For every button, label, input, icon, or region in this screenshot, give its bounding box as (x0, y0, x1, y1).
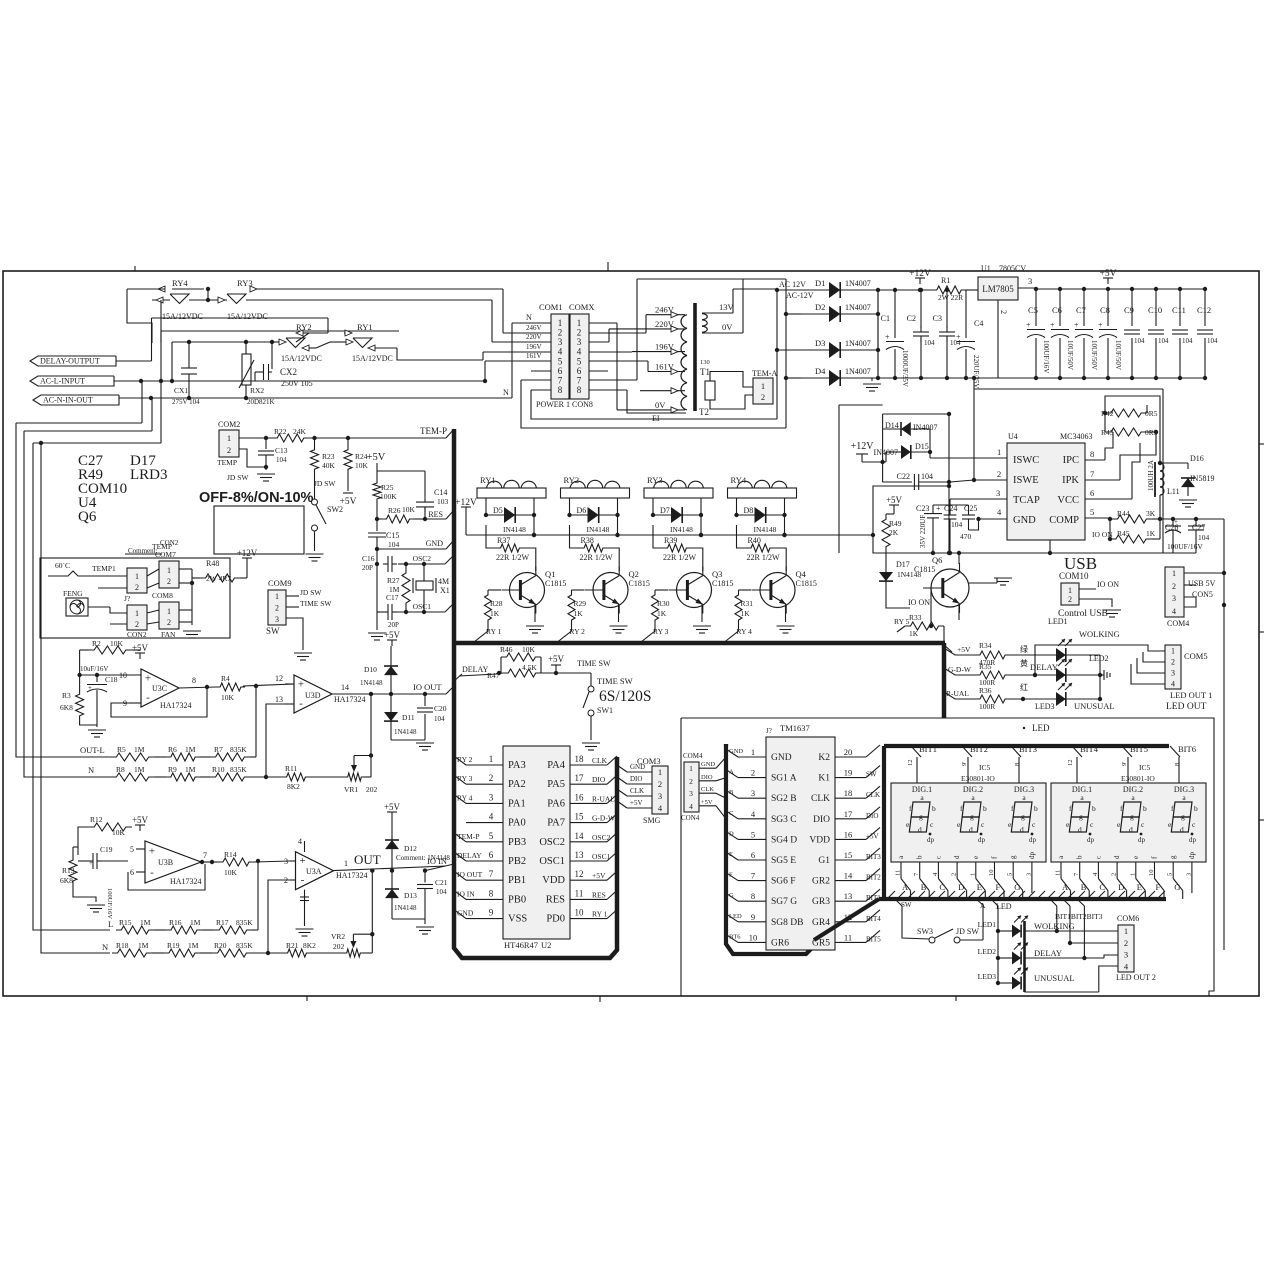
svg-text:FAN: FAN (161, 630, 176, 639)
svg-text:dp: dp (927, 836, 935, 844)
svg-text:3: 3 (1171, 669, 1175, 678)
svg-text:C22: C22 (897, 472, 910, 481)
svg-text:RY2: RY2 (296, 322, 312, 332)
svg-text:11: 11 (575, 888, 584, 898)
svg-text:b: b (1092, 804, 1096, 813)
svg-text:JD SW: JD SW (314, 479, 336, 488)
svg-text:Q6: Q6 (78, 509, 97, 525)
svg-text:5: 5 (130, 845, 134, 854)
svg-text:N: N (88, 765, 94, 775)
svg-text:13: 13 (575, 850, 585, 860)
svg-text:R10: R10 (212, 765, 225, 774)
svg-text:dp: dp (1029, 836, 1037, 844)
svg-text:COM10: COM10 (1059, 571, 1089, 581)
svg-text:6: 6 (130, 868, 134, 877)
svg-text:HA17324: HA17324 (170, 877, 202, 886)
svg-text:CON8: CON8 (572, 400, 593, 409)
svg-text:12: 12 (575, 869, 584, 879)
svg-text:USB 5V: USB 5V (1188, 579, 1216, 588)
svg-text:3: 3 (1172, 594, 1176, 603)
svg-text:3: 3 (284, 857, 288, 866)
svg-text:K1: K1 (818, 774, 830, 784)
svg-text:SG4 D: SG4 D (771, 835, 797, 845)
svg-text:PA3: PA3 (508, 760, 526, 771)
svg-text:BIT4: BIT4 (1080, 744, 1099, 754)
svg-text:D11: D11 (402, 713, 415, 722)
svg-text:1N4007: 1N4007 (845, 367, 871, 376)
svg-text:dp: dp (978, 836, 986, 844)
svg-text:+5V: +5V (548, 654, 565, 664)
svg-text:12: 12 (907, 760, 914, 767)
svg-text:1: 1 (577, 318, 582, 328)
svg-text:R46: R46 (500, 645, 513, 654)
svg-text:GND: GND (426, 539, 444, 548)
svg-text:C1815: C1815 (545, 579, 566, 588)
svg-text:OFF-8%/ON-10%: OFF-8%/ON-10% (199, 490, 314, 506)
svg-text:6: 6 (577, 366, 582, 376)
svg-text:12: 12 (1067, 760, 1074, 767)
svg-text:104: 104 (921, 472, 933, 481)
svg-text:2: 2 (951, 873, 958, 876)
svg-text:GND: GND (1013, 515, 1036, 526)
svg-text:1N4007: 1N4007 (845, 339, 871, 348)
svg-text:6S/120S: 6S/120S (599, 688, 652, 705)
svg-text:20P: 20P (388, 621, 399, 629)
svg-text:R26: R26 (388, 506, 401, 515)
svg-text:C13: C13 (275, 446, 288, 455)
svg-text:9: 9 (751, 912, 755, 922)
svg-text:LED: LED (729, 913, 742, 920)
svg-text:4: 4 (577, 347, 582, 357)
svg-text:C12: C12 (1197, 305, 1211, 315)
svg-text:R13: R13 (62, 866, 75, 875)
svg-text:2: 2 (489, 773, 494, 783)
svg-text:104: 104 (1207, 337, 1218, 345)
svg-text:1: 1 (167, 566, 171, 575)
svg-text:U3B: U3B (158, 858, 173, 867)
svg-text:F: F (1156, 882, 1161, 892)
svg-text:AC-12V: AC-12V (786, 291, 814, 300)
svg-text:R25: R25 (381, 483, 394, 492)
svg-text:F: F (996, 882, 1001, 892)
svg-text:11: 11 (844, 932, 852, 942)
svg-text:g: g (1130, 812, 1134, 821)
svg-text:+5V: +5V (957, 645, 971, 654)
svg-text:1N4148: 1N4148 (394, 904, 417, 912)
svg-text:202: 202 (333, 942, 345, 951)
svg-text:BIT5: BIT5 (1130, 744, 1148, 754)
svg-text:1K: 1K (909, 629, 919, 638)
svg-text:R11: R11 (285, 764, 297, 773)
svg-text:4: 4 (689, 802, 693, 811)
svg-text:2: 2 (658, 779, 662, 789)
svg-text:4: 4 (1171, 680, 1175, 689)
svg-text:196V: 196V (655, 342, 675, 352)
svg-text:D17: D17 (896, 560, 910, 569)
svg-text:OUT: OUT (354, 852, 381, 867)
svg-text:LED3: LED3 (978, 972, 997, 981)
svg-text:b: b (1076, 855, 1084, 859)
svg-text:BIT1BIT2BIT3: BIT1BIT2BIT3 (1055, 912, 1103, 921)
svg-text:2: 2 (227, 445, 231, 455)
svg-text:G: G (1014, 882, 1020, 892)
svg-text:1: 1 (1124, 926, 1128, 936)
svg-text:10UF/50V: 10UF/50V (1066, 340, 1074, 370)
svg-text:3: 3 (751, 788, 755, 798)
svg-text:VCC: VCC (1057, 495, 1079, 506)
svg-text:SW: SW (901, 901, 912, 909)
svg-text:1M: 1M (185, 765, 196, 774)
svg-text:10K: 10K (221, 693, 235, 702)
svg-text:SG3 C: SG3 C (771, 815, 797, 825)
svg-text:BIT4: BIT4 (866, 915, 881, 923)
svg-text:+12V: +12V (237, 548, 258, 558)
svg-text:R34: R34 (979, 641, 992, 650)
svg-text:R6: R6 (168, 745, 177, 754)
svg-text:+5V: +5V (886, 495, 903, 505)
svg-text:IO IN: IO IN (427, 856, 447, 866)
svg-text:10UF/50V: 10UF/50V (1114, 340, 1122, 370)
svg-text:R35: R35 (979, 662, 992, 671)
svg-text:+5V: +5V (384, 802, 401, 812)
svg-text:EI: EI (652, 414, 660, 423)
svg-text:104: 104 (1182, 337, 1193, 345)
svg-text:N: N (102, 942, 108, 952)
svg-text:2W 22R: 2W 22R (938, 293, 963, 302)
svg-text:835K: 835K (230, 745, 247, 754)
svg-text:CLK: CLK (630, 787, 644, 795)
svg-text:RES: RES (428, 510, 443, 519)
svg-text:SW: SW (266, 626, 280, 636)
svg-text:40K: 40K (322, 461, 336, 470)
svg-text:R44: R44 (1117, 509, 1130, 518)
svg-text:8K2: 8K2 (287, 782, 300, 791)
svg-text:D1: D1 (815, 278, 825, 288)
svg-text:+: + (1050, 321, 1055, 330)
svg-text:1M: 1M (188, 941, 199, 950)
svg-text:196V: 196V (526, 343, 542, 351)
svg-text:3: 3 (996, 488, 1000, 498)
svg-text:C11: C11 (1172, 305, 1186, 315)
svg-text:15A/12VDC: 15A/12VDC (352, 354, 393, 363)
svg-text:C5: C5 (1028, 305, 1038, 315)
svg-text:dp: dp (1188, 852, 1196, 860)
svg-text:AC-N-IN-OUT: AC-N-IN-OUT (43, 396, 93, 405)
svg-text:100UF/16V: 100UF/16V (1167, 542, 1203, 551)
svg-text:d: d (969, 825, 973, 834)
svg-text:24K: 24K (293, 427, 307, 436)
svg-text:VSS: VSS (508, 914, 527, 925)
svg-text:7: 7 (577, 376, 582, 386)
svg-text:DIO: DIO (701, 774, 713, 781)
svg-text:TIME SW: TIME SW (300, 599, 332, 608)
svg-text:3: 3 (1025, 873, 1032, 876)
svg-text:IN4148: IN4148 (670, 525, 693, 534)
svg-text:g: g (1021, 812, 1025, 821)
svg-text:IO ON: IO ON (1097, 580, 1119, 589)
svg-text:GR2: GR2 (812, 877, 830, 887)
svg-text:CON2: CON2 (127, 630, 147, 639)
svg-text:2: 2 (135, 583, 139, 592)
svg-text:R5: R5 (117, 745, 126, 754)
svg-text:IPC: IPC (1063, 455, 1079, 466)
svg-text:13V: 13V (719, 302, 735, 312)
svg-text:5: 5 (558, 356, 563, 366)
svg-text:COM6: COM6 (1117, 914, 1139, 923)
svg-text:C23: C23 (916, 504, 929, 513)
svg-text:d: d (953, 855, 961, 859)
svg-text:A: A (1062, 882, 1069, 892)
svg-text:R12: R12 (90, 815, 103, 824)
svg-text:100K: 100K (380, 492, 397, 501)
svg-text:10uF/16V: 10uF/16V (80, 665, 108, 673)
svg-text:15A/12VDC: 15A/12VDC (227, 312, 268, 321)
svg-text:1M: 1M (190, 918, 201, 927)
svg-text:C6: C6 (1052, 305, 1062, 315)
svg-text:9': 9' (961, 762, 968, 766)
svg-text:275V 104: 275V 104 (172, 398, 200, 406)
svg-text:202: 202 (366, 785, 378, 794)
svg-text:16: 16 (844, 829, 853, 839)
svg-text:12: 12 (275, 674, 283, 683)
svg-text:C9: C9 (1124, 305, 1134, 315)
svg-text:LED3: LED3 (1035, 702, 1055, 711)
svg-text:D8: D8 (744, 506, 754, 515)
svg-text:7: 7 (203, 851, 207, 860)
svg-text:VR2: VR2 (331, 932, 345, 941)
svg-text:R-UAL: R-UAL (946, 689, 969, 698)
svg-text:D10: D10 (364, 665, 377, 674)
svg-text:2: 2 (577, 328, 582, 338)
svg-text:PB1: PB1 (508, 875, 526, 886)
svg-text:ISWC: ISWC (1013, 455, 1039, 466)
svg-text:7805CV: 7805CV (999, 264, 1026, 273)
svg-text:1: 1 (1129, 873, 1136, 876)
svg-text:R36: R36 (979, 686, 992, 695)
svg-text:Q3: Q3 (712, 569, 722, 579)
svg-text:1N4007: 1N4007 (845, 303, 871, 312)
svg-text:CLK: CLK (592, 756, 608, 765)
svg-text:6K8: 6K8 (60, 876, 73, 885)
svg-text:104: 104 (434, 715, 445, 723)
svg-text:R9: R9 (168, 765, 177, 774)
svg-text:OSC1: OSC1 (539, 856, 565, 867)
svg-text:1: 1 (558, 318, 563, 328)
svg-text:10K: 10K (402, 505, 416, 514)
svg-text:20D821K: 20D821K (247, 398, 275, 406)
svg-text:BIT3: BIT3 (866, 853, 881, 861)
svg-text:SW: SW (866, 771, 877, 779)
svg-text:835K: 835K (236, 941, 253, 950)
svg-text:HA17324: HA17324 (160, 701, 192, 710)
svg-text:U1: U1 (981, 264, 991, 273)
svg-text:1: 1 (135, 609, 139, 618)
svg-text:C3: C3 (933, 314, 942, 323)
svg-text:DIO: DIO (813, 815, 830, 825)
svg-text:246V: 246V (526, 324, 542, 332)
svg-text:6: 6 (558, 366, 563, 376)
svg-text:8: 8 (577, 385, 582, 395)
svg-text:C2: C2 (907, 314, 916, 323)
svg-text:5: 5 (1167, 873, 1174, 876)
svg-text:D: D (958, 882, 964, 892)
svg-text:14: 14 (341, 683, 349, 692)
svg-text:PA7: PA7 (547, 818, 565, 829)
svg-text:C17: C17 (386, 593, 399, 602)
svg-text:IO IN: IO IN (457, 889, 475, 898)
svg-text:N: N (526, 313, 532, 322)
svg-text:IN4148: IN4148 (503, 525, 526, 534)
svg-text:R37: R37 (497, 536, 510, 545)
svg-text:1M: 1M (185, 745, 196, 754)
svg-text:PB3: PB3 (508, 837, 526, 848)
svg-text:+5V: +5V (592, 871, 606, 880)
svg-text:dp: dp (1028, 852, 1036, 860)
svg-text:1000UF/35V: 1000UF/35V (901, 350, 909, 387)
svg-text:4: 4 (489, 812, 494, 822)
svg-text:3: 3 (1185, 873, 1192, 876)
svg-text:IN5819: IN5819 (1190, 474, 1214, 483)
svg-text:+5V: +5V (630, 799, 643, 807)
svg-text:U2: U2 (541, 940, 551, 950)
svg-text:BIT1: BIT1 (919, 744, 937, 754)
svg-text:COMP: COMP (1049, 515, 1079, 526)
svg-text:5: 5 (577, 356, 582, 366)
svg-text:+: + (145, 673, 151, 685)
svg-text:Q4: Q4 (796, 569, 807, 579)
svg-text:RY4: RY4 (172, 278, 188, 288)
svg-text:d: d (1078, 825, 1082, 834)
svg-text:GR6: GR6 (771, 938, 789, 948)
svg-text:161V: 161V (526, 352, 542, 360)
svg-text:C8: C8 (1100, 305, 1110, 315)
svg-text:GND: GND (771, 753, 792, 763)
svg-text:R20: R20 (214, 941, 227, 950)
svg-text:AC 12V: AC 12V (779, 280, 806, 289)
svg-text:5: 5 (1090, 507, 1094, 517)
svg-text:J?: J? (124, 594, 131, 603)
svg-text:HT46R47: HT46R47 (504, 940, 538, 950)
svg-text:6: 6 (751, 850, 755, 860)
svg-text:PA0: PA0 (508, 818, 526, 829)
svg-text:130: 130 (700, 359, 710, 366)
svg-text:1: 1 (489, 754, 494, 764)
svg-text:10K: 10K (110, 639, 124, 648)
svg-text:C1815: C1815 (629, 579, 650, 588)
svg-text:R18: R18 (116, 941, 129, 950)
svg-text:1K: 1K (1146, 529, 1156, 538)
svg-text:7: 7 (489, 869, 494, 879)
svg-text:1M: 1M (134, 745, 145, 754)
svg-text:B: B (921, 882, 927, 892)
svg-text:SG5 E: SG5 E (771, 856, 796, 866)
svg-text:104: 104 (276, 456, 287, 464)
svg-text:2: 2 (689, 777, 693, 786)
svg-text:C19: C19 (100, 845, 113, 854)
svg-text:COM5: COM5 (1184, 651, 1208, 661)
svg-text:T2: T2 (699, 407, 709, 417)
svg-text:COM2: COM2 (218, 420, 240, 429)
svg-text:8: 8 (558, 385, 563, 395)
svg-text:2: 2 (167, 577, 171, 586)
svg-text:R40: R40 (748, 536, 761, 545)
svg-text:3: 3 (1124, 950, 1128, 960)
svg-text:OSC2: OSC2 (539, 837, 565, 848)
svg-text:1N4007: 1N4007 (845, 279, 871, 288)
svg-text:3: 3 (558, 337, 563, 347)
svg-text:1: 1 (167, 607, 171, 616)
svg-text:PB2: PB2 (508, 856, 526, 867)
svg-text:22R 1/2W: 22R 1/2W (580, 553, 614, 562)
svg-text:VDD: VDD (542, 875, 565, 886)
svg-text:WOLKING: WOLKING (1079, 629, 1120, 639)
svg-text:d: d (1020, 825, 1024, 834)
svg-text:IC5: IC5 (979, 763, 991, 772)
svg-text:RY 1: RY 1 (592, 910, 608, 919)
svg-text:2: 2 (1172, 582, 1176, 591)
svg-text:1M: 1M (134, 765, 145, 774)
svg-text:1: 1 (1171, 647, 1175, 656)
svg-text:2: 2 (761, 392, 765, 402)
svg-text:100UH 2A: 100UH 2A (1147, 460, 1155, 491)
svg-text:L11: L11 (1167, 487, 1180, 496)
svg-text:RY1: RY1 (480, 475, 496, 485)
svg-text:R15: R15 (119, 918, 132, 927)
svg-text:R22: R22 (274, 427, 287, 436)
svg-text:8: 8 (489, 888, 494, 898)
svg-text:PA2: PA2 (508, 779, 526, 790)
svg-text:TEMP1: TEMP1 (92, 564, 116, 573)
svg-text:c: c (934, 856, 942, 859)
svg-text:g: g (1009, 855, 1017, 859)
svg-text:4: 4 (1172, 607, 1176, 616)
svg-text:10: 10 (1148, 870, 1155, 877)
svg-text:22R 1/2W: 22R 1/2W (496, 553, 530, 562)
svg-text:TIME SW: TIME SW (597, 676, 633, 686)
svg-text:R38: R38 (581, 536, 594, 545)
svg-text:GND: GND (729, 748, 743, 755)
svg-text:R8: R8 (116, 765, 125, 774)
svg-text:OUT-L: OUT-L (80, 745, 105, 755)
svg-text:IN4007: IN4007 (913, 423, 937, 432)
svg-text:+: + (1098, 321, 1103, 330)
svg-text:TEM-P: TEM-P (420, 426, 447, 436)
svg-text:+: + (89, 859, 93, 867)
svg-text:MC34063: MC34063 (1060, 432, 1092, 441)
svg-text:R29: R29 (574, 599, 587, 608)
svg-text:16: 16 (575, 792, 585, 802)
svg-text:20: 20 (844, 747, 853, 757)
svg-text:1: 1 (344, 859, 348, 868)
svg-text:4M: 4M (438, 577, 449, 586)
svg-text:D5: D5 (493, 506, 503, 515)
svg-text:TCAP: TCAP (1013, 495, 1040, 506)
svg-text:SW3: SW3 (917, 927, 933, 936)
svg-text:CON2: CON2 (160, 539, 179, 547)
svg-text:LED2: LED2 (978, 947, 997, 956)
svg-text:UNUSUAL: UNUSUAL (1034, 973, 1075, 983)
svg-text:10UF/50V: 10UF/50V (1090, 340, 1098, 370)
svg-text:C10: C10 (1148, 305, 1162, 315)
svg-text:+: + (1026, 321, 1031, 330)
svg-text:R3: R3 (62, 691, 71, 700)
svg-text:b: b (932, 804, 936, 813)
svg-text:JD SW: JD SW (227, 473, 249, 482)
svg-text:R17: R17 (216, 918, 229, 927)
svg-text:SG6 F: SG6 F (771, 877, 796, 887)
svg-text:17: 17 (575, 773, 585, 783)
svg-text:AC-L-INPUT: AC-L-INPUT (40, 377, 85, 386)
